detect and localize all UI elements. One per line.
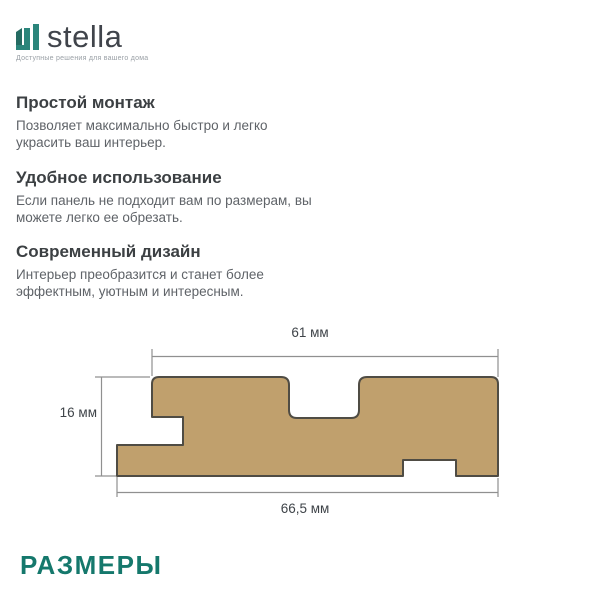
stella-logo-icon bbox=[14, 23, 40, 51]
feature-easy-use: Удобное использование Если панель не под… bbox=[16, 167, 336, 226]
feature-description: Если панель не подходит вам по размерам,… bbox=[16, 193, 312, 226]
dimension-left-height: 16 мм bbox=[60, 377, 150, 476]
sizes-section-title: РАЗМЕРЫ bbox=[20, 550, 162, 581]
dimension-bottom-width-label: 66,5 мм bbox=[281, 501, 330, 516]
header: stella Доступные решения для вашего дома bbox=[14, 23, 148, 62]
dimension-top-width-label: 61 мм bbox=[291, 325, 328, 340]
feature-description: Позволяет максимально быстро и легко укр… bbox=[16, 118, 312, 151]
panel-cross-section-diagram: 61 мм 16 мм 66,5 мм bbox=[0, 0, 600, 600]
dimension-top-width: 61 мм bbox=[152, 325, 498, 377]
feature-title: Простой монтаж bbox=[16, 92, 336, 114]
panel-profile-shape bbox=[117, 377, 498, 476]
feature-title: Современный дизайн bbox=[16, 241, 336, 263]
logo: stella bbox=[14, 23, 148, 51]
feature-title: Удобное использование bbox=[16, 167, 336, 189]
feature-modern-design: Современный дизайн Интерьер преобразится… bbox=[16, 241, 336, 300]
feature-easy-install: Простой монтаж Позволяет максимально быс… bbox=[16, 92, 336, 151]
brand-name: stella bbox=[47, 23, 122, 51]
dimension-bottom-width: 66,5 мм bbox=[117, 477, 498, 516]
feature-description: Интерьер преобразится и станет более эфф… bbox=[16, 267, 312, 300]
dimension-left-height-label: 16 мм bbox=[60, 405, 97, 420]
brand-tagline: Доступные решения для вашего дома bbox=[16, 55, 148, 62]
